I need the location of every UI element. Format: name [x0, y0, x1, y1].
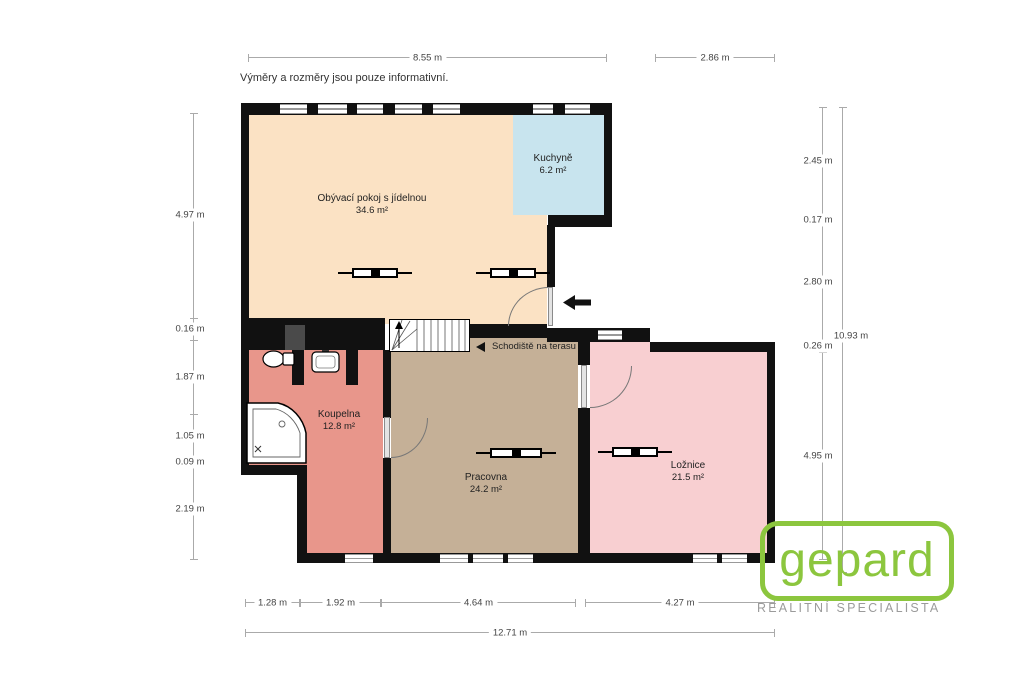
wall — [241, 465, 307, 475]
dimension-label: 2.19 m — [172, 503, 207, 516]
dimension-label: 2.45 m — [800, 155, 835, 168]
window-mullion — [468, 553, 473, 563]
room-label-living: Obývací pokoj s jídelnou34.6 m² — [318, 193, 427, 217]
stairs-arrow-icon — [476, 342, 485, 352]
window — [345, 554, 373, 563]
dimension-label: 0.17 m — [800, 214, 835, 227]
room-living — [249, 115, 547, 324]
window-mullion — [717, 553, 722, 563]
dimension-label: 4.97 m — [172, 209, 207, 222]
wall — [297, 465, 307, 553]
dimension-line-bottom: 4.27 m — [585, 602, 775, 603]
window — [395, 104, 422, 114]
wall — [578, 338, 590, 365]
wall — [470, 324, 547, 338]
room-label-study: Pracovna24.2 m² — [465, 472, 507, 496]
dimension-label: 2.80 m — [800, 276, 835, 289]
dimension-label: 0.16 m — [172, 323, 207, 336]
dimension-line-top: 8.55 m — [248, 57, 607, 58]
radiator — [598, 447, 672, 457]
window — [433, 104, 460, 114]
wall — [650, 342, 767, 352]
dimension-label: 0.09 m — [172, 456, 207, 469]
dimension-line-bottom: 1.92 m — [300, 602, 381, 603]
window — [598, 330, 622, 340]
shaft — [285, 325, 305, 350]
room-label-kitchen: Kuchyně6.2 m² — [534, 153, 573, 177]
dimension-line-bottom: 4.64 m — [381, 602, 576, 603]
room-label-bedroom: Ložnice21.5 m² — [671, 460, 705, 484]
window — [533, 104, 553, 114]
room-bathroom — [307, 465, 383, 553]
radiator — [476, 448, 556, 458]
stairs-label: Schodiště na terasu — [492, 341, 576, 352]
logo-tagline: REALITNÍ SPECIALISTA — [757, 601, 957, 615]
gepard-logo: gepard — [760, 521, 954, 601]
window — [357, 104, 383, 114]
dimension-line-bottom: 1.28 m — [245, 602, 300, 603]
sink — [311, 350, 340, 373]
dimension-label: 1.05 m — [172, 430, 207, 443]
toilet — [262, 349, 296, 369]
wall — [383, 350, 391, 418]
dimension-line-right — [822, 107, 823, 560]
door-leaf — [384, 417, 390, 458]
window-mullion — [503, 553, 508, 563]
door-leaf — [581, 365, 587, 408]
logo-brand-text: gepard — [779, 537, 934, 585]
window — [280, 104, 307, 114]
dimension-label: 4.95 m — [800, 450, 835, 463]
dimension-line-bottom-total: 12.71 m — [245, 632, 775, 633]
window — [565, 104, 590, 114]
wall — [548, 215, 612, 227]
radiator — [338, 268, 412, 278]
window — [440, 554, 533, 563]
dimension-label: 10.93 m — [831, 330, 871, 343]
disclaimer-text: Výměry a rozměry jsou pouze informativní… — [240, 72, 448, 84]
radiator — [476, 268, 550, 278]
window — [318, 104, 347, 114]
dimension-line-left — [193, 113, 194, 560]
floor-plan-page: Výměry a rozměry jsou pouze informativní… — [0, 0, 1024, 682]
entrance-arrow-icon — [563, 295, 591, 310]
wall — [383, 458, 391, 553]
bathtub — [246, 402, 307, 464]
wall — [604, 103, 612, 227]
dimension-line-top: 2.86 m — [655, 57, 775, 58]
staircase — [389, 319, 470, 352]
room-label-bathroom: Koupelna12.8 m² — [318, 409, 360, 433]
wall — [578, 408, 590, 553]
door-leaf — [548, 287, 553, 326]
dimension-label: 1.87 m — [172, 371, 207, 384]
wall — [346, 350, 358, 385]
wall-terrace-band — [241, 318, 385, 350]
